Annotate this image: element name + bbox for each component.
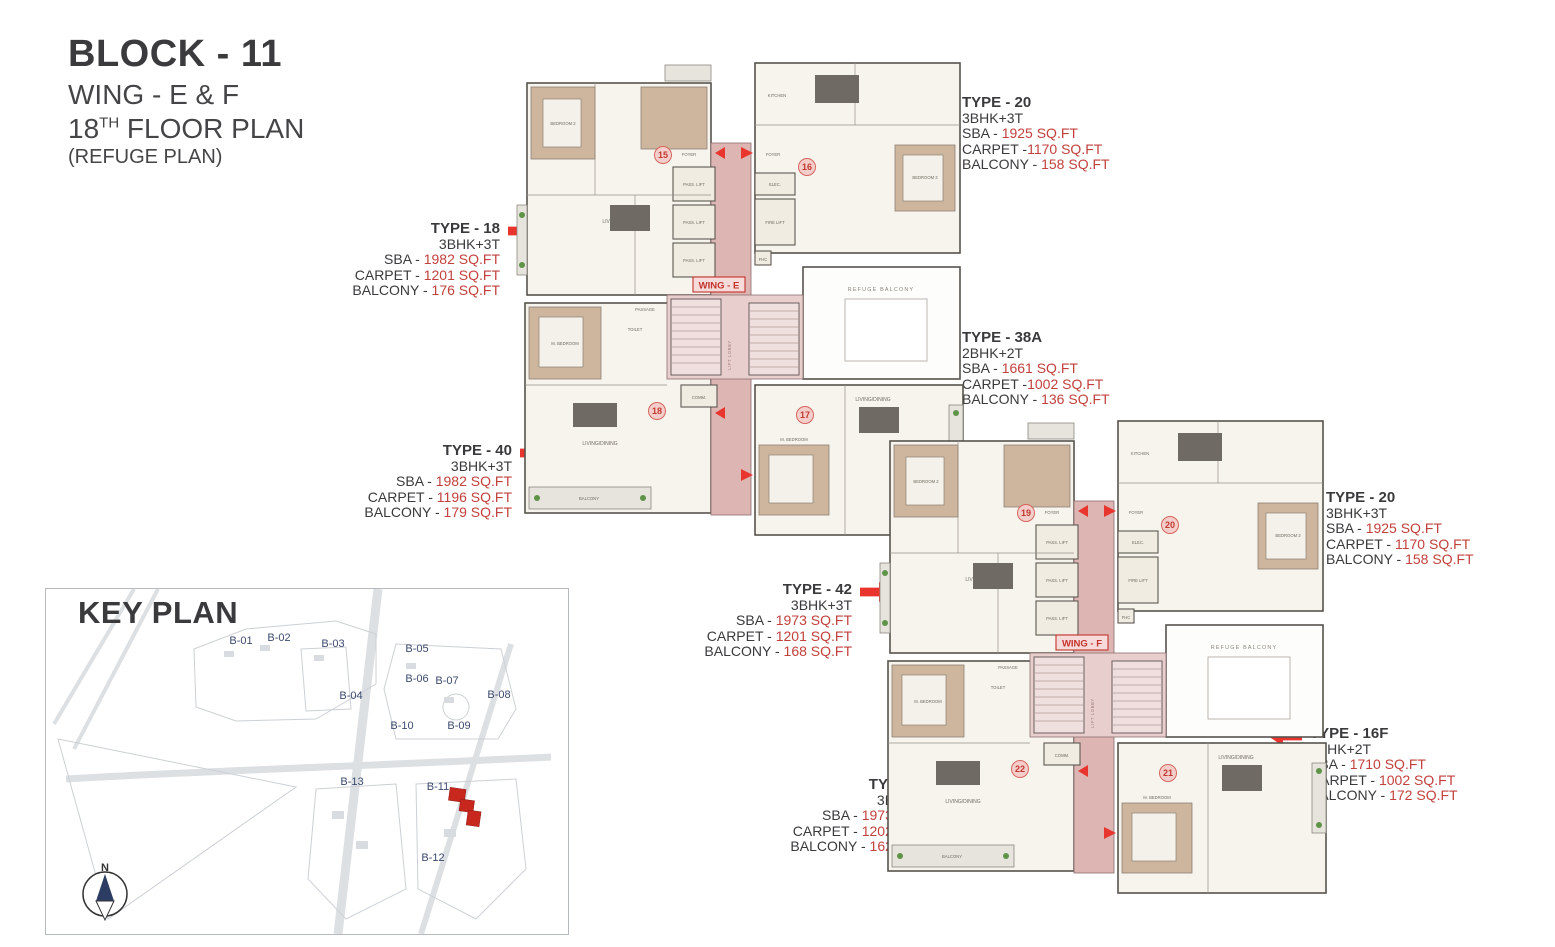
svg-text:PASS. LIFT: PASS. LIFT [1046,540,1068,545]
compass-north-label: N [101,862,109,874]
type-carpet: CARPET - 1170 SQ.FT [1326,537,1538,553]
svg-text:COMM.: COMM. [692,395,706,400]
svg-text:PASS. LIFT: PASS. LIFT [683,182,705,187]
highlighted-block-b11 [445,787,484,826]
svg-text:REFUGE BALCONY: REFUGE BALCONY [848,287,915,293]
type-balcony: BALCONY - 158 SQ.FT [1326,552,1538,568]
wing-e-name: WING - E [699,281,740,292]
type-label: TYPE - 18 [288,221,500,237]
type-balcony: BALCONY - 179 SQ.FT [300,505,512,521]
svg-text:KITCHEN: KITCHEN [1131,451,1149,456]
svg-text:LIVING/DINING: LIVING/DINING [965,577,1000,583]
svg-text:BEDROOM 3: BEDROOM 3 [1275,533,1301,538]
unit-number: 17 [800,410,810,420]
svg-text:LIVING/DINING: LIVING/DINING [602,219,637,225]
key-plan-block-label: B-05 [405,643,428,655]
type-label: TYPE - 16F [1310,726,1522,742]
title-block: BLOCK - 11 WING - E & F 18TH FLOOR PLAN … [68,34,304,168]
key-plan-block-label: B-06 [405,673,428,685]
unit-number: 18 [652,406,662,416]
svg-text:TOILET: TOILET [628,327,643,332]
floor-title: 18TH FLOOR PLAN [68,114,304,144]
key-plan-panel: KEY PLAN [45,588,569,935]
svg-text:COMM.: COMM. [1055,753,1069,758]
type-sba: SBA - 1982 SQ.FT [288,252,500,268]
svg-text:BALCONY: BALCONY [579,496,599,501]
unit-number: 15 [658,150,668,160]
svg-text:FOYER: FOYER [766,152,780,157]
svg-text:PASSAGE: PASSAGE [998,665,1018,670]
key-plan-block-label: B-12 [421,852,444,864]
plan-subtitle: (REFUGE PLAN) [68,147,304,169]
svg-text:LIVING/DINING: LIVING/DINING [582,441,617,447]
svg-text:PASS. LIFT: PASS. LIFT [683,258,705,263]
type-carpet: CARPET - 1201 SQ.FT [288,268,500,284]
unit-number: 16 [802,162,812,172]
compass-icon: N [83,862,127,920]
svg-text:M. BEDROOM: M. BEDROOM [551,341,579,346]
svg-text:FIRE LIFT: FIRE LIFT [1128,578,1148,583]
wing-f-name: WING - F [1062,639,1102,650]
key-plan-block-label: B-09 [447,720,470,732]
type-label: TYPE - 20 [1326,490,1538,506]
key-plan-block-label: B-07 [435,675,458,687]
type-balcony: BALCONY - 176 SQ.FT [288,283,500,299]
svg-text:BEDROOM 2: BEDROOM 2 [913,479,939,484]
type-label: TYPE - 40 [300,443,512,459]
svg-text:PASSAGE: PASSAGE [635,307,655,312]
key-plan-block-label: B-10 [390,720,413,732]
svg-text:PASS. LIFT: PASS. LIFT [1046,616,1068,621]
key-plan-block-label: B-02 [267,632,290,644]
svg-text:FIRE LIFT: FIRE LIFT [765,220,785,225]
key-plan-block-label: B-04 [339,690,362,702]
unit-number: 19 [1021,508,1031,518]
svg-text:FOYER: FOYER [682,152,696,157]
type-balcony: BALCONY - 172 SQ.FT [1310,788,1522,804]
svg-text:TOILET: TOILET [991,685,1006,690]
svg-text:FOYER: FOYER [1129,510,1143,515]
svg-text:BEDROOM 3: BEDROOM 3 [912,175,938,180]
svg-text:LIVING/DINING: LIVING/DINING [855,397,890,403]
key-plan-block-label: B-03 [321,638,344,650]
svg-text:M. BEDROOM: M. BEDROOM [780,437,808,442]
type-config: 3BHK+3T [288,237,500,253]
type-sba: SBA - 1710 SQ.FT [1310,757,1522,773]
svg-text:KITCHEN: KITCHEN [768,93,786,98]
unit-number: 20 [1165,520,1175,530]
type-card-16f: TYPE - 16F 2BHK+2T SBA - 1710 SQ.FT CARP… [1310,726,1522,804]
type-config: 3BHK+3T [1326,506,1538,522]
svg-text:FHC: FHC [759,257,768,262]
key-plan-block-label: B-08 [487,689,510,701]
svg-text:REFUGE BALCONY: REFUGE BALCONY [1211,645,1278,651]
floor-plan-drawing: WING - E 15 16 18 17 PASS. LIFT PASS. LI… [510,50,1340,930]
svg-text:LIVING/DINING: LIVING/DINING [1218,755,1253,761]
block-title: BLOCK - 11 [68,34,304,75]
svg-text:BALCONY: BALCONY [942,854,962,859]
svg-text:M. BEDROOM: M. BEDROOM [1143,795,1171,800]
svg-text:PASS. LIFT: PASS. LIFT [1046,578,1068,583]
type-carpet: CARPET - 1002 SQ.FT [1310,773,1522,789]
page: BLOCK - 11 WING - E & F 18TH FLOOR PLAN … [0,0,1555,947]
svg-text:FOYER: FOYER [1045,510,1059,515]
svg-text:ELEC.: ELEC. [769,182,781,187]
wing-title: WING - E & F [68,80,304,110]
svg-text:LIFT LOBBY: LIFT LOBBY [727,340,732,370]
key-plan-block-label: B-13 [340,776,363,788]
type-config: 3BHK+3T [300,459,512,475]
svg-text:BEDROOM 2: BEDROOM 2 [550,121,576,126]
type-carpet: CARPET - 1196 SQ.FT [300,490,512,506]
type-card-20-wing-f: TYPE - 20 3BHK+3T SBA - 1925 SQ.FT CARPE… [1326,490,1538,568]
wing-f-plan: WING - F 19 20 22 21 PASS. LIFT PASS. LI… [880,421,1326,893]
unit-number: 22 [1015,764,1025,774]
key-plan-block-label: B-11 [427,781,449,793]
svg-text:PASS. LIFT: PASS. LIFT [683,220,705,225]
key-plan-title: KEY PLAN [78,595,238,631]
type-card-18: TYPE - 18 3BHK+3T SBA - 1982 SQ.FT CARPE… [288,221,500,299]
unit-number: 21 [1163,768,1173,778]
key-plan-map: B-01 B-02 B-03 B-04 B-05 B-06 B-07 B-08 … [46,589,568,934]
key-plan-block-label: B-01 [229,635,252,647]
type-sba: SBA - 1925 SQ.FT [1326,521,1538,537]
type-sba: SBA - 1982 SQ.FT [300,474,512,490]
svg-text:ELEC.: ELEC. [1132,540,1144,545]
svg-text:LIVING/DINING: LIVING/DINING [945,799,980,805]
svg-text:LIFT LOBBY: LIFT LOBBY [1090,698,1095,728]
type-config: 2BHK+2T [1310,742,1522,758]
svg-text:FHC: FHC [1122,615,1131,620]
svg-text:M. BEDROOM: M. BEDROOM [914,699,942,704]
type-card-40: TYPE - 40 3BHK+3T SBA - 1982 SQ.FT CARPE… [300,443,512,521]
